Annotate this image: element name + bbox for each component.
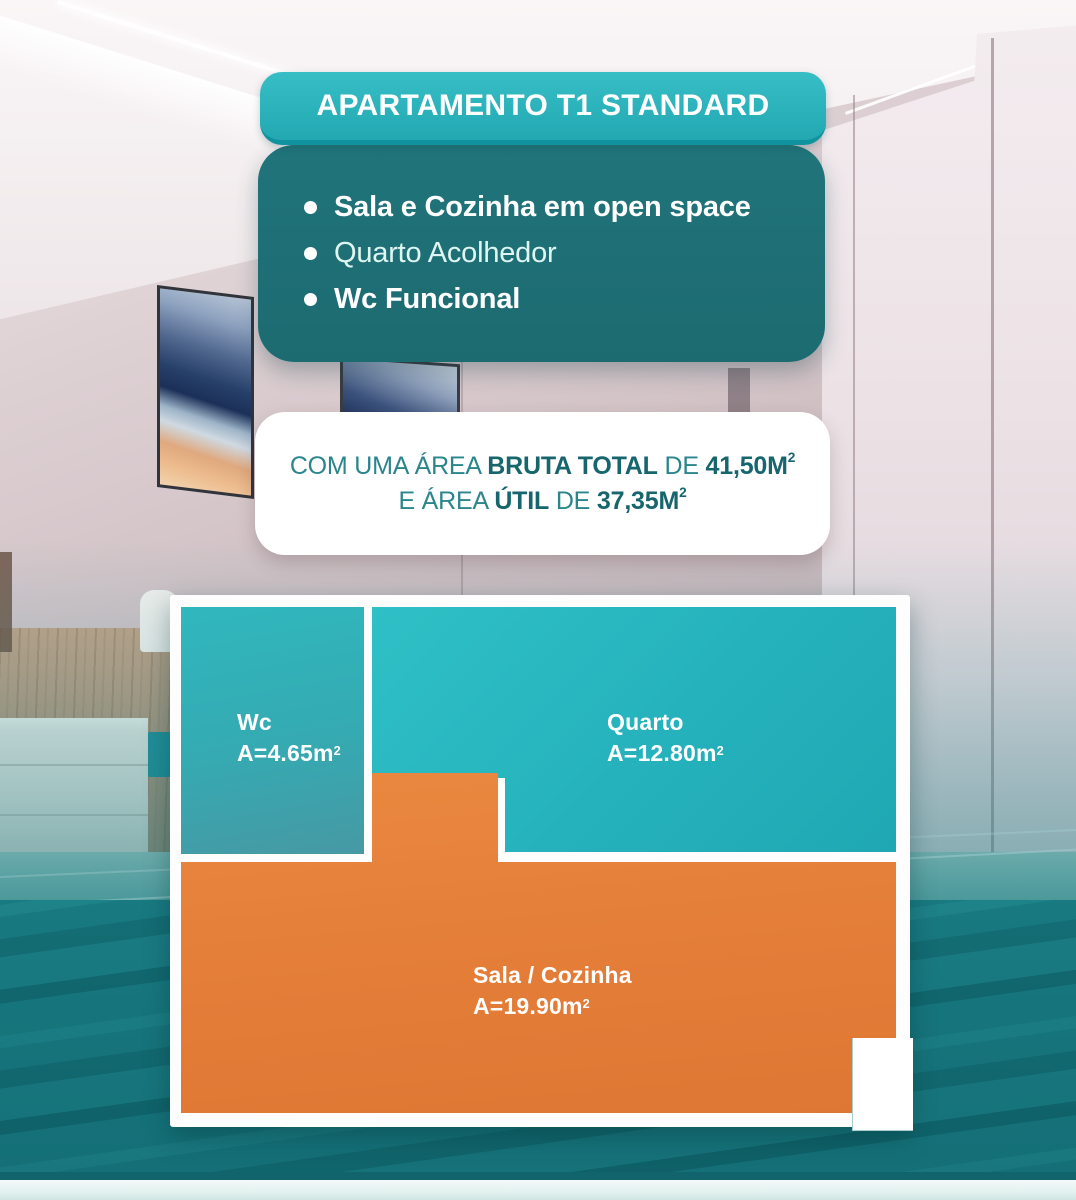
room-area-value: A=12.80m <box>607 740 717 766</box>
room-label-sala-cozinha: Sala / Cozinha A=19.90m2 <box>473 960 632 1022</box>
apartment-title: APARTAMENTO T1 STANDARD <box>316 89 769 123</box>
dresser-drawer-seam <box>0 764 148 766</box>
area-text: DE <box>549 487 597 515</box>
superscript: 2 <box>679 485 686 500</box>
room-area-value: A=19.90m <box>473 993 583 1019</box>
feature-item: Quarto Acolhedor <box>304 237 825 270</box>
features-card: Sala e Cozinha em open space Quarto Acol… <box>258 145 825 362</box>
poster-canvas: APARTAMENTO T1 STANDARD Sala e Cozinha e… <box>0 0 1076 1200</box>
area-summary-card: COM UMA ÁREA BRUTA TOTAL DE 41,50M2 E ÁR… <box>255 412 830 555</box>
feature-label: Wc Funcional <box>334 283 520 316</box>
feature-label: Quarto Acolhedor <box>334 237 557 270</box>
feature-item: Wc Funcional <box>304 283 825 316</box>
feature-label: Sala e Cozinha em open space <box>334 191 751 224</box>
room-name: Wc <box>237 707 341 738</box>
superscript: 2 <box>717 744 724 758</box>
room-area: A=4.65m2 <box>237 738 341 769</box>
area-value-number: 37,35M <box>597 487 679 515</box>
room-area: A=19.90m2 <box>473 991 632 1022</box>
bullet-icon <box>304 201 317 214</box>
area-text-bold: ÚTIL <box>494 487 549 515</box>
dresser-drawer-seam <box>0 814 148 816</box>
area-value: 37,35M2 <box>597 487 687 515</box>
room-name: Sala / Cozinha <box>473 960 632 991</box>
room-name: Quarto <box>607 707 724 738</box>
area-text: E ÁREA <box>398 487 494 515</box>
feature-item: Sala e Cozinha em open space <box>304 191 825 224</box>
headboard-edge <box>0 552 12 652</box>
area-text: DE <box>658 452 706 480</box>
bullet-icon <box>304 247 317 260</box>
area-line-2: E ÁREA ÚTIL DE 37,35M2 <box>255 487 830 516</box>
area-line-1: COM UMA ÁREA BRUTA TOTAL DE 41,50M2 <box>255 452 830 481</box>
floor-plan-entry-notch <box>852 1038 913 1131</box>
room-area-value: A=4.65m <box>237 740 334 766</box>
room-label-quarto: Quarto A=12.80m2 <box>607 707 724 769</box>
superscript: 2 <box>334 744 341 758</box>
floor-bottom-band <box>0 1180 1076 1200</box>
superscript: 2 <box>583 997 590 1011</box>
superscript: 2 <box>788 450 795 465</box>
wall-painting <box>157 285 254 499</box>
area-value: 41,50M2 <box>706 452 796 480</box>
room-area: A=12.80m2 <box>607 738 724 769</box>
title-badge: APARTAMENTO T1 STANDARD <box>260 72 826 145</box>
area-text-bold: BRUTA TOTAL <box>487 452 657 480</box>
area-text: COM UMA ÁREA <box>290 452 487 480</box>
area-value-number: 41,50M <box>706 452 788 480</box>
floor-edge-line <box>0 1172 1076 1180</box>
dresser <box>0 718 148 863</box>
bullet-icon <box>304 293 317 306</box>
room-label-wc: Wc A=4.65m2 <box>237 707 341 769</box>
floor-plan: Wc A=4.65m2 Quarto A=12.80m2 Sala / Cozi… <box>170 595 910 1127</box>
